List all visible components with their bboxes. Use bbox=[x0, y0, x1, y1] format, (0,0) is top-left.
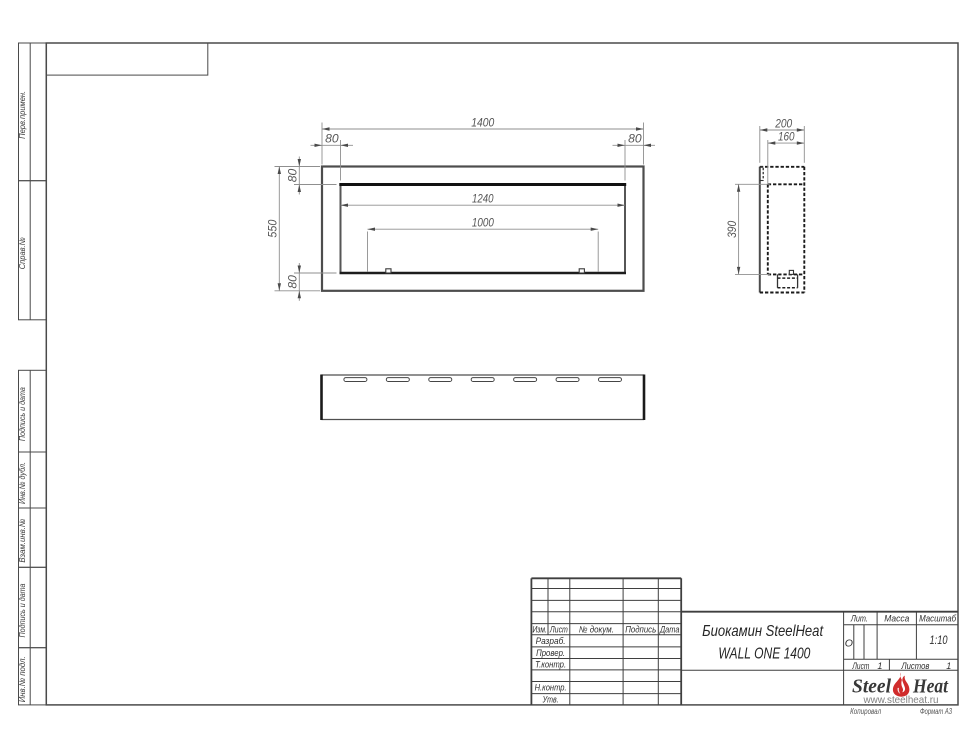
svg-text:200: 200 bbox=[774, 116, 792, 130]
svg-text:Копировал: Копировал bbox=[850, 706, 881, 716]
svg-text:Биокамин SteelHeat: Биокамин SteelHeat bbox=[702, 623, 824, 640]
svg-text:WALL ONE 1400: WALL ONE 1400 bbox=[718, 646, 810, 663]
svg-text:Т.контр.: Т.контр. bbox=[535, 659, 566, 669]
svg-text:80: 80 bbox=[628, 132, 642, 146]
svg-text:Разраб.: Разраб. bbox=[536, 636, 566, 646]
svg-text:390: 390 bbox=[725, 221, 739, 238]
svg-text:160: 160 bbox=[778, 129, 795, 143]
svg-text:Лист: Лист bbox=[852, 661, 870, 671]
svg-text:1240: 1240 bbox=[472, 192, 494, 206]
svg-text:Инв.№ подл.: Инв.№ подл. bbox=[18, 656, 27, 702]
svg-text:Масса: Масса bbox=[884, 613, 909, 623]
svg-text:1400: 1400 bbox=[471, 115, 494, 129]
svg-text:Листов: Листов bbox=[901, 661, 930, 671]
svg-text:Дата: Дата bbox=[659, 625, 679, 635]
svg-text:80: 80 bbox=[286, 275, 300, 289]
svg-text:Справ.№: Справ.№ bbox=[18, 237, 27, 269]
svg-text:1: 1 bbox=[946, 661, 951, 671]
svg-text:О: О bbox=[845, 637, 853, 649]
svg-text:1:10: 1:10 bbox=[930, 635, 948, 647]
svg-text:80: 80 bbox=[325, 132, 339, 146]
svg-text:Провер.: Провер. bbox=[536, 648, 565, 658]
svg-text:Инв.№ дубл.: Инв.№ дубл. bbox=[18, 462, 27, 504]
svg-text:№ докум.: № докум. bbox=[579, 625, 614, 635]
svg-text:Подпись: Подпись bbox=[625, 625, 656, 635]
svg-text:Изм.: Изм. bbox=[532, 625, 547, 635]
svg-text:1000: 1000 bbox=[472, 216, 494, 230]
svg-text:Перв.примен.: Перв.примен. bbox=[18, 91, 27, 139]
svg-text:www.steelheat.ru: www.steelheat.ru bbox=[863, 694, 939, 706]
svg-text:Н.контр.: Н.контр. bbox=[535, 683, 567, 693]
svg-text:Подпись и дата: Подпись и дата bbox=[18, 583, 27, 637]
svg-text:Лит.: Лит. bbox=[850, 613, 868, 623]
svg-text:Утв.: Утв. bbox=[542, 694, 559, 704]
svg-text:Лист: Лист bbox=[549, 625, 568, 635]
svg-text:80: 80 bbox=[286, 169, 300, 183]
svg-text:Формат А3: Формат А3 bbox=[920, 706, 952, 716]
svg-text:Подпись и дата: Подпись и дата bbox=[18, 387, 27, 441]
svg-text:Взам.инв.№: Взам.инв.№ bbox=[18, 519, 27, 563]
svg-text:550: 550 bbox=[266, 220, 280, 238]
svg-text:Масштаб: Масштаб bbox=[919, 613, 957, 623]
svg-text:1: 1 bbox=[877, 661, 882, 671]
